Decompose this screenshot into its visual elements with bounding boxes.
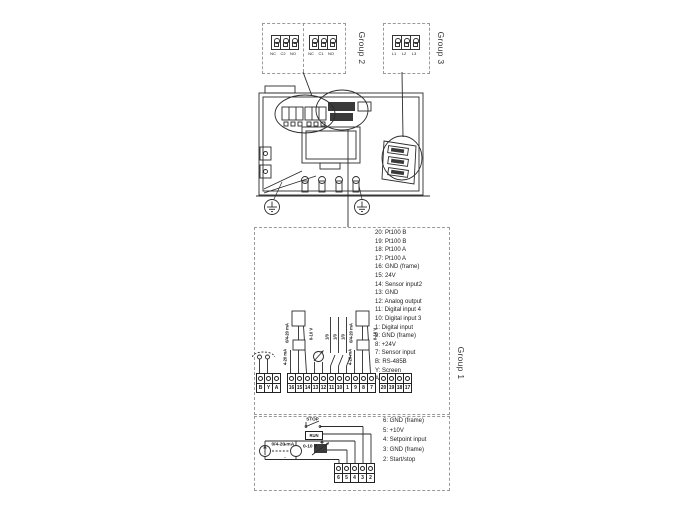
relay-connector-1 [271,35,299,50]
terminal-description: 11: Digital input 4 [375,306,422,315]
minus-sign: - [284,455,286,460]
connector-pin [290,36,298,49]
terminal-cell: 16 [288,374,296,392]
terminal-cell: 7 [368,374,375,392]
terminal-cell: 17 [404,374,411,392]
connector-pin [328,36,336,49]
left-sensor-loop-label: 4-20 mA [283,349,288,365]
plus-sign: + [284,443,287,448]
pt100-terminal-block: 20 19 18 17 [379,373,412,393]
group3-label: Group 3 [436,32,446,65]
left-sensor-box [292,311,305,326]
wiring-diagram-page: Group 2 Group 3 Group 1 NC C2 NO NC C1 N… [0,0,700,512]
setpoint-terminal-legend: 6: GND (frame) 5: +10V 4: Setpoint input… [383,417,426,466]
terminal-description: 3: GND (frame) [383,446,426,456]
switch-state-label: 1/0 [325,334,330,340]
right-sensor-current-label: 0/4-20 mA [349,323,354,343]
meter-icon [314,351,324,362]
voltage-source-label: 0-10 V [303,445,317,450]
terminal-description: 8: +24V [375,341,422,350]
cable-screen-icon [253,352,275,373]
right-sensor-loop-label: 4-20 mA [348,349,353,365]
setpoint-terminal-block: 6 5 4 3 2 [334,463,375,483]
stop-label: STOP [306,417,318,422]
pin-label: NO [288,51,298,56]
terminal-description: 1: Digital input [375,324,422,333]
left-sensor-voltage-label: 0-10 V [309,328,314,340]
terminal-cell: 12 [320,374,328,392]
io-terminal-block: 16 15 14 13 12 11 10 1 9 8 7 [287,373,376,393]
switch-state-label: 1/0 [341,334,346,340]
terminal-description: 12: Analog output [375,298,422,307]
terminal-cell: 5 [343,464,351,482]
right-sensor-box [356,311,369,326]
right-transmitter-box [357,340,369,350]
terminal-description: B: RS-485B [375,358,422,367]
connector-pin [402,36,411,49]
connector-pin [319,36,328,49]
pin-label: NC [268,51,278,56]
terminal-description: 17: Pt100 A [375,255,422,264]
pin-label: L1 [389,51,399,56]
terminal-cell: Y [265,374,273,392]
group1-terminal-legend: 20: Pt100 B 19: Pt100 B 18: Pt100 A 17: … [375,229,422,384]
mains-connector [392,35,420,50]
terminal-cell: 9 [352,374,360,392]
right-sensor-voltage-label: 0-10 V [373,328,378,340]
pin-label: L3 [409,51,419,56]
pin-label: C1 [316,51,326,56]
terminal-cell: 1 [344,374,352,392]
terminal-description: 16: GND (frame) [375,263,422,272]
terminal-cell: 15 [296,374,304,392]
terminal-cell: 2 [367,464,374,482]
connector-pin [281,36,290,49]
voltage-source-icon [291,446,302,457]
terminal-cell: 20 [380,374,388,392]
left-transmitter-box [293,340,305,350]
terminal-cell: 3 [359,464,367,482]
switch-state-label: 1/0 [333,334,338,340]
terminal-description: 2: Start/stop [383,456,426,466]
mains-connector-labels: L1 L2 L3 [389,51,419,56]
terminal-description: 4: Setpoint input [383,436,426,446]
pin-label: NC [306,51,316,56]
connector-pin [393,36,402,49]
terminal-cell: A [273,374,280,392]
terminal-description: 15: 24V [375,272,422,281]
left-sensor-current-label: 0/4-20 mA [285,323,290,343]
terminal-cell: 10 [336,374,344,392]
terminal-cell: 8 [360,374,368,392]
pin-label: C2 [278,51,288,56]
group1-label: Group 1 [456,347,466,380]
connector-pin [310,36,319,49]
terminal-description: 10: Digital input 3 [375,315,422,324]
terminal-cell: B [257,374,265,392]
terminal-description: 13: GND [375,289,422,298]
group2-label: Group 2 [357,32,367,65]
terminal-cell: 19 [388,374,396,392]
terminal-description: 6: GND (frame) [383,417,426,427]
terminal-description: 7: Sensor input [375,349,422,358]
terminal-description: 9: GND (frame) [375,332,422,341]
relay-connector-2 [309,35,337,50]
pin-label: L2 [399,51,409,56]
relay-connector-2-labels: NC C1 NO [306,51,336,56]
pin-label: NO [326,51,336,56]
terminal-cell: 6 [335,464,343,482]
diagram-line-art [0,0,700,512]
terminal-description: 19: Pt100 B [375,238,422,247]
stop-run-switch [305,421,321,427]
terminal-cell: 4 [351,464,359,482]
bus-terminal-block: B Y A [256,373,281,393]
terminal-cell: 14 [304,374,312,392]
connector-pin [411,36,419,49]
relay-connector-1-labels: NC C2 NO [268,51,298,56]
terminal-cell: 18 [396,374,404,392]
connector-pin [272,36,281,49]
terminal-cell: 11 [328,374,336,392]
terminal-description: 20: Pt100 B [375,229,422,238]
terminal-cell: 13 [312,374,320,392]
terminal-description: 14: Sensor input2 [375,281,422,290]
run-label: RUN [305,431,323,440]
terminal-description: 18: Pt100 A [375,246,422,255]
current-source-icon [260,445,271,457]
earth-ground-icon-right [355,186,370,215]
terminal-description: 5: +10V [383,427,426,437]
earth-ground-icon-left [265,182,283,215]
